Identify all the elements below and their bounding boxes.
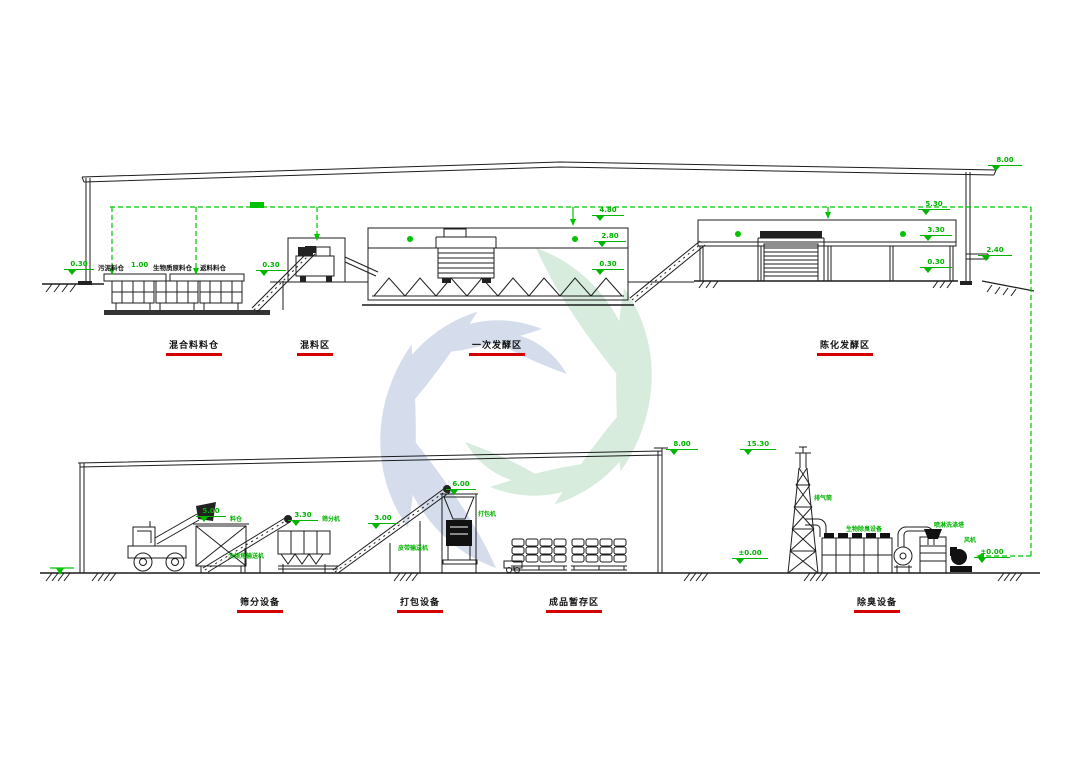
silo-label-biomass: 生物质原料仓 xyxy=(153,262,192,272)
biofilter-unit xyxy=(822,533,892,573)
zone-label-mixing-area: 混料区 xyxy=(267,338,363,356)
dim-conveyor-top: 3.00 xyxy=(368,514,398,524)
equip-label-hopper: 料仓 xyxy=(230,514,242,523)
packing-machine xyxy=(440,494,522,573)
aging-fermentation-structure xyxy=(694,220,958,288)
dim-hopper-top: 5.00 xyxy=(196,507,226,517)
equip-label-biofilter: 生物除臭设备 xyxy=(846,524,882,533)
silo-label-sludge: 污泥料仓 xyxy=(98,262,124,272)
zone-label-primary-fermentation: 一次发酵区 xyxy=(449,338,545,356)
zone-label-deodorization-equipment: 除臭设备 xyxy=(829,595,925,613)
compost-turner-1 xyxy=(436,229,496,283)
dim-screener-top: 3.30 xyxy=(288,511,318,521)
equip-label-fan: 风机 xyxy=(964,535,976,544)
bottom-elevation-drawing xyxy=(40,447,1040,581)
equip-label-packer: 打包机 xyxy=(478,509,496,518)
dim-top-ground-left: 0.30 xyxy=(64,260,94,270)
equip-label-exhaust-stack: 排气筒 xyxy=(814,493,832,502)
equip-label-screener: 筛分机 xyxy=(322,514,340,523)
equip-label-scrubber: 喷淋洗涤塔 xyxy=(934,520,964,529)
dim-ground-left: ±0.00 xyxy=(732,549,768,559)
fan-1 xyxy=(894,547,912,573)
zone-label-aging-fermentation: 陈化发酵区 xyxy=(797,338,893,356)
mixer-machine xyxy=(288,238,345,282)
spray-scrubber xyxy=(920,529,946,573)
dim-right-wall: 2.40 xyxy=(978,246,1012,256)
screening-machine xyxy=(278,531,338,573)
equip-label-belt-conveyor: 皮带输送机 xyxy=(398,543,428,552)
dim-ferm-mid: 2.80 xyxy=(594,232,626,242)
elevation-linework xyxy=(0,0,1080,763)
zone-label-packing-equipment: 打包设备 xyxy=(372,595,468,613)
dim-aging-wall-top: 5.30 xyxy=(918,200,950,210)
dim-silo-gap: 1.00 xyxy=(131,261,148,269)
compost-turner-2 xyxy=(758,231,824,281)
top-elevation-drawing xyxy=(42,162,1034,315)
dim-stack-top: 15.30 xyxy=(740,440,776,450)
dim-ground-right: ±0.00 xyxy=(974,548,1010,558)
fan-2 xyxy=(950,547,972,572)
dim-packer-top: 6.00 xyxy=(446,480,476,490)
dim-aging-base: 0.30 xyxy=(920,258,952,268)
zone-label-mixed-material-silo: 混合料料仓 xyxy=(146,338,242,356)
silo-label-return-material: 返料料仓 xyxy=(200,262,226,272)
incline-conveyor-2 xyxy=(333,485,451,573)
dim-bottom-roof-eave: 8.00 xyxy=(666,440,698,450)
exhaust-stack-tower xyxy=(788,447,818,573)
feed-hopper xyxy=(193,524,249,573)
dim-ferm-base: 0.30 xyxy=(592,260,624,270)
zone-label-product-storage: 成品暂存区 xyxy=(526,595,622,613)
bottom-green-markers xyxy=(50,568,74,575)
dim-top-roof-eave: 8.00 xyxy=(988,156,1022,166)
dim-ferm-wall-top: 4.80 xyxy=(592,206,624,216)
bag-stacks xyxy=(511,539,627,570)
dim-mixer-base: 0.30 xyxy=(256,261,286,271)
equip-label-incline-conveyor: 大倾角输送机 xyxy=(228,551,264,560)
dim-aging-mid: 3.30 xyxy=(920,226,952,236)
silo-hoppers xyxy=(112,281,242,310)
zone-label-screening-equipment: 筛分设备 xyxy=(212,595,308,613)
drawing-canvas: 混合料料仓 混料区 一次发酵区 陈化发酵区 筛分设备 打包设备 成品暂存区 除臭… xyxy=(0,0,1080,763)
